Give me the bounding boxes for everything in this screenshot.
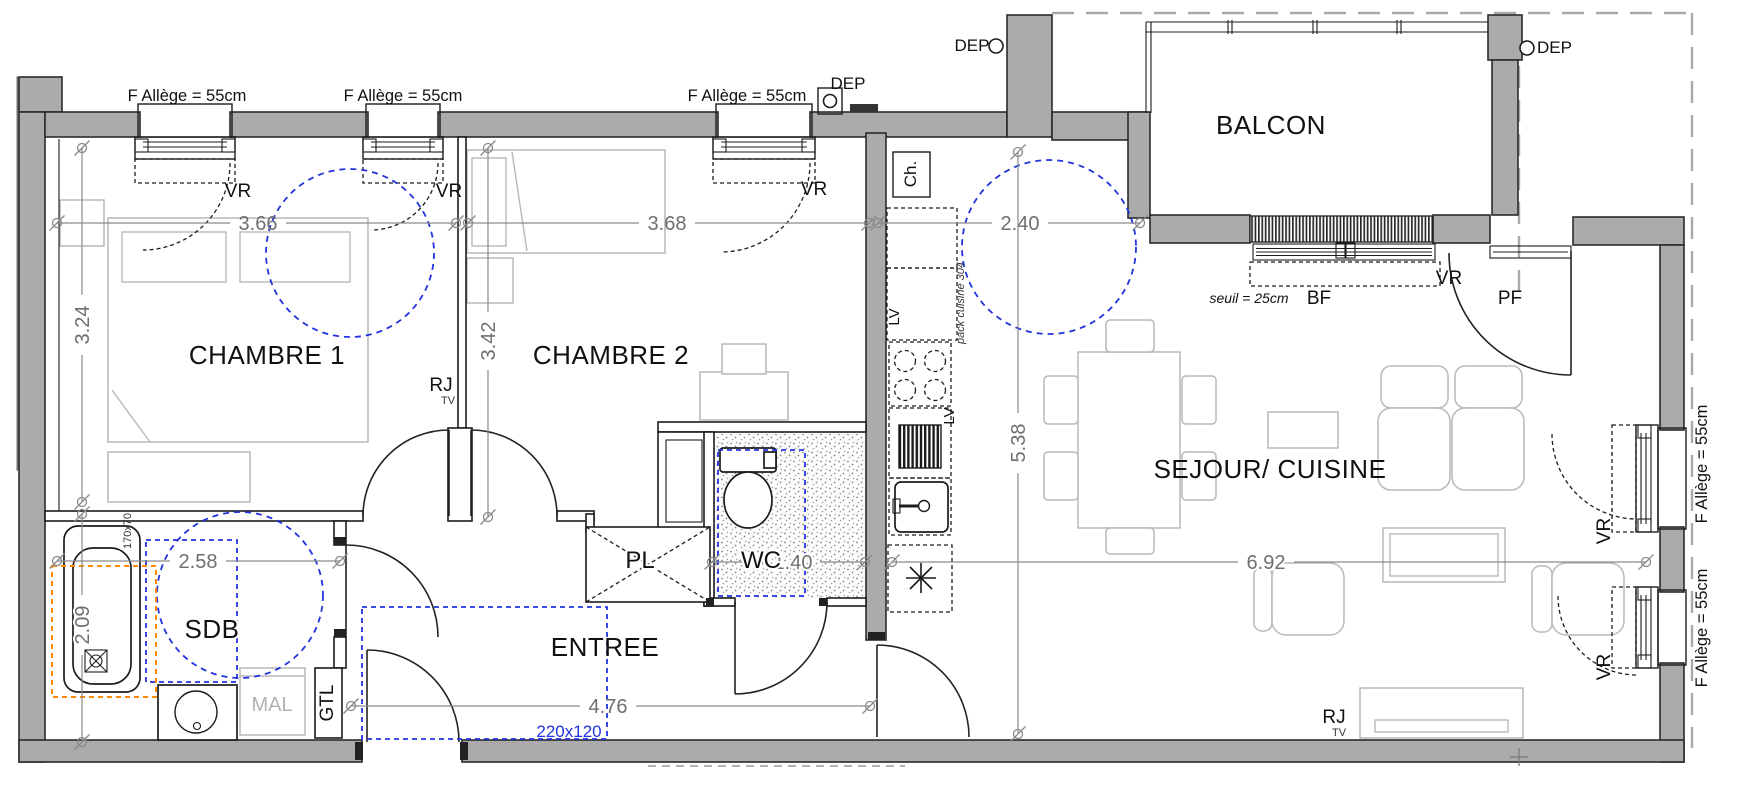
dresser xyxy=(108,452,250,502)
dim-ch1-height: 3.24 xyxy=(72,141,94,510)
north-wall xyxy=(45,112,140,137)
toilet-bowl xyxy=(724,472,772,528)
dim-kitchen-width: 2.40 xyxy=(871,213,1148,235)
tv-socket-sub: TV xyxy=(441,395,456,407)
fixed-bay-label: BF xyxy=(1307,288,1331,309)
north-wall xyxy=(810,112,1007,137)
shutter-label: VR xyxy=(1594,654,1615,680)
clearance-rect-entree xyxy=(362,607,607,739)
door-jamb xyxy=(355,742,363,760)
washbasin-vanity xyxy=(158,685,237,740)
kitchen-counter xyxy=(887,208,957,268)
room-label-entree: ENTREE xyxy=(551,632,659,662)
shutter-label: VR xyxy=(1436,268,1462,289)
kitchen-pack-note: pack cuisine 304 xyxy=(955,262,967,345)
dim-text: 2.58 xyxy=(179,551,218,573)
dep-label: DEP xyxy=(955,36,990,55)
wc-north-wall xyxy=(658,422,866,432)
armchair-back xyxy=(1532,566,1552,632)
window-sejour-east-1 xyxy=(1552,425,1686,532)
wc-fixtures xyxy=(720,448,776,528)
dep-vent-icon xyxy=(1520,41,1534,55)
dep-vent-icon xyxy=(989,39,1003,53)
room-label-sdb: SDB xyxy=(185,614,240,644)
side-table xyxy=(1268,412,1338,448)
dim-text: 3.24 xyxy=(72,306,94,345)
dishwasher-label: LV xyxy=(886,308,903,325)
shutter-box-dashed xyxy=(1250,262,1440,286)
window-sill-label: F Allège = 55cm xyxy=(1693,569,1711,688)
door-entree-sejour xyxy=(877,645,969,737)
door-pier xyxy=(448,428,472,521)
turning-circle-sejour xyxy=(962,160,1136,334)
south-wall xyxy=(19,740,362,762)
dim-entree-width: 4.76 xyxy=(344,696,878,718)
room-label-chambre1: CHAMBRE 1 xyxy=(189,340,345,370)
toilet-flush xyxy=(764,452,776,468)
kitchen xyxy=(887,152,957,612)
turning-circle-sdb xyxy=(157,512,323,678)
dep-vent-icon xyxy=(824,95,837,108)
threshold-note: seuil = 25cm xyxy=(1210,290,1289,306)
bathtub-size-note: 170x70 xyxy=(122,513,134,549)
washing-machine-label: MAL xyxy=(251,694,292,716)
chair xyxy=(1106,528,1154,554)
pf-door-swing xyxy=(1449,253,1571,375)
chair xyxy=(1044,452,1078,500)
window-chambre2-east xyxy=(713,104,815,252)
sejour-north-wall xyxy=(1573,217,1684,245)
chair xyxy=(1106,320,1154,352)
shutter-label: VR xyxy=(225,181,251,202)
corner-block xyxy=(19,77,62,112)
cooktop xyxy=(889,342,951,406)
bed-chambre2 xyxy=(467,150,665,253)
floor-plan-page: 3.66 3.68 2.40 3.24 3.42 5.38 2.58 2.09 … xyxy=(0,0,1750,800)
wall-tick xyxy=(850,104,878,112)
room-label-pl: PL xyxy=(625,547,654,574)
shutter-label: VR xyxy=(436,181,462,202)
window-sill-label: F Allège = 55cm xyxy=(688,87,807,105)
balcony-east-cap xyxy=(1488,15,1522,60)
east-wall xyxy=(1660,527,1684,592)
boiler-label: Ch. xyxy=(901,161,920,187)
shutter-label: VR xyxy=(1594,518,1615,544)
party-wall-block xyxy=(1007,15,1052,137)
balcony-threshold-hatch xyxy=(1250,216,1433,242)
floor-plan-svg: 3.66 3.68 2.40 3.24 3.42 5.38 2.58 2.09 … xyxy=(0,0,1750,800)
west-wall xyxy=(19,112,45,762)
room-label-wc: WC xyxy=(741,547,781,574)
chair xyxy=(1044,376,1078,424)
window-sill-label: F Allège = 55cm xyxy=(128,87,247,105)
tv-cabinet xyxy=(1360,688,1523,738)
kitchen-counter xyxy=(887,268,957,340)
wc-south-wall xyxy=(827,598,866,606)
window-chambre2 xyxy=(363,104,443,230)
bed-chambre1 xyxy=(108,218,368,442)
desk-chair xyxy=(722,344,766,374)
chair xyxy=(1182,376,1216,424)
door-clearance-note: 220x120 xyxy=(536,722,601,741)
dim-text: 6.92 xyxy=(1247,552,1286,574)
dining-table xyxy=(1078,352,1180,528)
dim-text: 4.76 xyxy=(589,696,628,718)
dim-text: 3.42 xyxy=(478,322,500,361)
fridge-slot xyxy=(888,545,952,612)
dep-label: DEP xyxy=(831,74,866,93)
french-door-label: PF xyxy=(1498,288,1522,309)
door-chambre2 xyxy=(471,430,557,516)
window-sill-label: F Allège = 55cm xyxy=(1693,405,1711,524)
dim-text: 5.38 xyxy=(1008,424,1030,463)
tv-socket-label: RJ xyxy=(1322,707,1345,728)
door-chambre1 xyxy=(363,430,449,516)
dim-text: 3.66 xyxy=(239,213,278,235)
desk xyxy=(700,372,788,420)
door-entry xyxy=(367,650,459,742)
room-label-sejour: SEJOUR/ CUISINE xyxy=(1154,454,1387,484)
sofa-seat xyxy=(1378,408,1450,490)
shutter-label: VR xyxy=(801,179,827,200)
nightstand xyxy=(467,258,513,303)
window-sill-label: F Allège = 55cm xyxy=(344,87,463,105)
tv-socket-label: RJ xyxy=(429,375,452,396)
dim-text: 2.40 xyxy=(1001,213,1040,235)
dep-label: DEP xyxy=(1537,38,1572,57)
sofa-back-cushion xyxy=(1455,366,1522,408)
room-label-balcon: BALCON xyxy=(1216,110,1326,140)
armchair-back xyxy=(1254,567,1272,631)
utility-duct-label: GTL xyxy=(317,685,338,722)
south-wall xyxy=(462,740,1684,762)
sdb-east-wall xyxy=(334,637,346,668)
coffee-table xyxy=(1383,528,1505,582)
balcony-east-wall xyxy=(1492,60,1518,215)
door-wc xyxy=(735,602,827,694)
door-jamb xyxy=(460,742,468,760)
sofa-back-cushion xyxy=(1381,366,1448,408)
sofa-seat xyxy=(1452,408,1524,490)
drainer xyxy=(899,425,941,468)
east-wall xyxy=(1660,245,1684,430)
door-sdb xyxy=(346,545,438,637)
dishwasher-label: LV xyxy=(941,407,958,424)
dim-text: 2.09 xyxy=(72,606,94,645)
sejour-north-wall xyxy=(1150,215,1250,243)
dim-text: 3.68 xyxy=(648,213,687,235)
balcony-west-wall xyxy=(1128,112,1150,218)
north-wall xyxy=(438,112,718,137)
bay-pier xyxy=(1433,215,1490,243)
room-label-chambre2: CHAMBRE 2 xyxy=(533,340,689,370)
north-wall xyxy=(230,112,368,137)
tv-socket-sub: TV xyxy=(1332,727,1347,739)
